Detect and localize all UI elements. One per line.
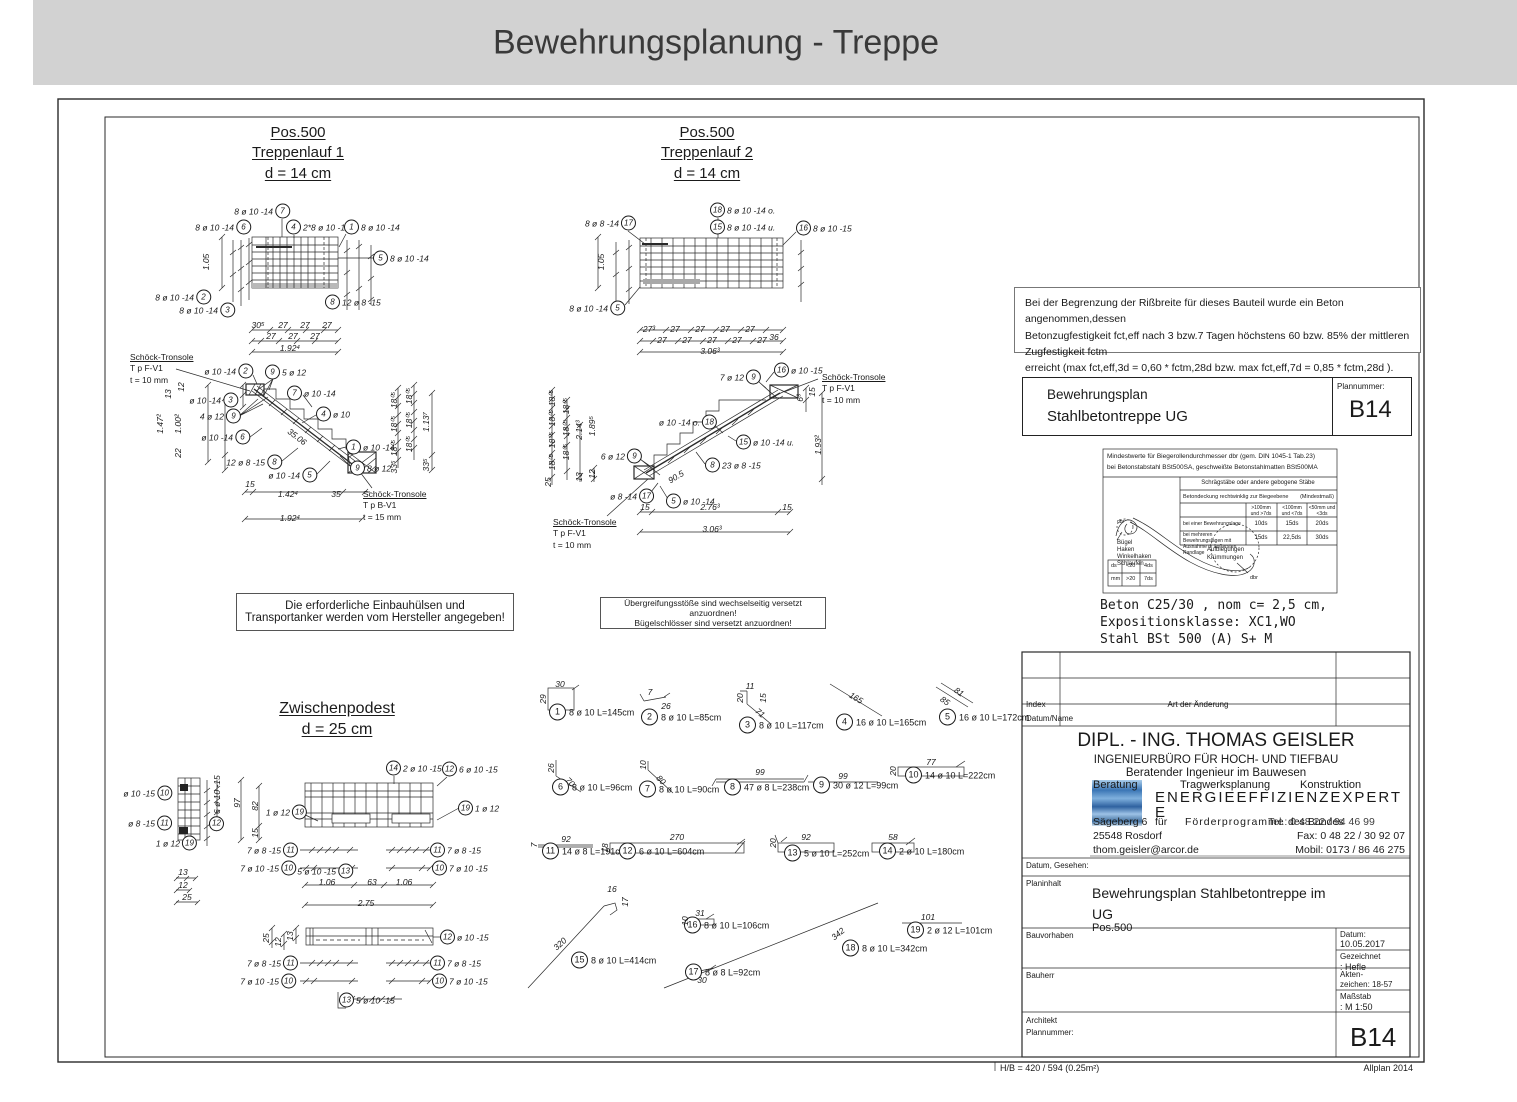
rissbreite-line: Bei der Begrenzung der Rißbreite für die… (1025, 295, 1410, 328)
schedule-item: 416 ø 10 L=165cm (836, 714, 926, 731)
callout: 135 ø 10 -15 (339, 993, 395, 1008)
dim-label: 2.75 (358, 899, 375, 908)
position-number: 8 (325, 295, 340, 310)
dim-label: 18⁰⁵ (562, 398, 571, 414)
dim-label: 27 (288, 332, 297, 341)
position-number: 9 (746, 370, 761, 385)
position-number: 4 (836, 714, 853, 731)
note-line: Transportanker werden vom Hersteller ang… (237, 612, 513, 624)
callout: ø 10 -143 (189, 393, 238, 408)
dim-label: 18⁰⁵ (390, 440, 399, 456)
callout: 58 ø 10 -14 (373, 251, 429, 266)
position-number: 18 (842, 940, 859, 957)
callout: 8 ø 8 -1417 (585, 216, 636, 231)
schoeck-title: Schöck-Tronsole (822, 372, 885, 383)
note-line: Die erforderliche Einbauhülsen und (237, 600, 513, 612)
rebar-label: 8 ø 10 -15 (813, 223, 852, 233)
dim-label: 99 (838, 772, 847, 781)
dim-label: 77 (926, 758, 935, 767)
dim-label: 33⁵ (422, 458, 431, 471)
dim-label: 1.00² (174, 414, 183, 433)
lauf2-name-title: Treppenlauf 2 (661, 144, 753, 161)
schoeck-note-1: Schöck-Tronsole T p F-V1 t = 10 mm (130, 352, 193, 386)
plannummer-label: Plannummer: (1337, 382, 1385, 391)
schedule-item: 192 ø 12 L=101cm (907, 922, 992, 939)
callout: 191 ø 12 (458, 801, 499, 816)
rissbreite-line: Betonzugfestigkeit fct,eff nach 3 bzw.7 … (1025, 328, 1410, 361)
dim-label: 29 (539, 694, 548, 703)
rebar-label: 7 ø 12 (720, 372, 744, 382)
bend-mini-7ds: 7ds (1144, 576, 1153, 582)
callout: ø 8 -1511 (128, 816, 172, 831)
callout: 15ø 10 -14 u. (736, 435, 794, 450)
rebar-label: 8 ø 8 -14 (585, 218, 619, 228)
rebar-label: 7 ø 8 -15 (447, 958, 481, 968)
dim-label: 27 (657, 336, 666, 345)
podest-thickness: d = 25 cm (302, 721, 373, 739)
callout: 8 ø 10 -143 (179, 303, 235, 318)
lauf1-pos-title: Pos.500 (270, 124, 325, 141)
bar-length-label: 47 ø 8 L=238cm (744, 782, 809, 792)
expositionsklasse: Expositionsklasse: XC1,WO (1100, 615, 1296, 630)
schedule-item: 38 ø 10 L=117cm (739, 717, 824, 734)
rebar-label: 7 ø 8 -15 (247, 845, 281, 855)
callout: ø 10 -145 (268, 468, 317, 483)
screenshot-root: Bewehrungsplanung - Treppe (0, 0, 1517, 1102)
bend-row1-label: bei einer Bewehrungslage (1183, 521, 1243, 527)
dim-label: 3.06³ (702, 525, 721, 534)
rebar-label: 7 ø 10 -15 (240, 976, 279, 986)
bar-length-label: 30 ø 12 L=99cm (833, 780, 898, 790)
callout: 117 ø 8 -15 (430, 843, 481, 858)
position-number: 11 (542, 843, 559, 860)
art-der-aenderung-label: Art der Änderung (1168, 700, 1229, 709)
dim-label: 92 (801, 833, 810, 842)
position-number: 13 (784, 845, 801, 862)
dim-label: 1.93² (814, 435, 823, 454)
dim-label: 30 (555, 680, 564, 689)
planinhalt-label: Planinhalt (1026, 879, 1061, 888)
bend-kruemmungen: Krümmungen (1207, 555, 1243, 561)
dim-label: 27 (707, 336, 716, 345)
rebar-label: 12 ø 8 -15 (226, 457, 265, 467)
position-number: 7 (639, 781, 656, 798)
position-number: 9 (813, 777, 830, 794)
bend-dbr-loop: dbr (1117, 519, 1124, 525)
schedule-item: 1014 ø 10 L=222cm (905, 767, 995, 784)
bar-length-label: 14 ø 8 L=191cm (562, 846, 627, 856)
position-number: 19 (907, 922, 924, 939)
position-number: 1 (549, 704, 566, 721)
bar-length-label: 2 ø 12 L=101cm (927, 925, 992, 935)
dim-label: 18⁰⁵ (562, 444, 571, 460)
datum-gesehen-label: Datum, Gesehen: (1026, 861, 1089, 870)
rebar-label: 7 ø 10 -15 (240, 863, 279, 873)
position-number: 16 (774, 363, 789, 378)
callout: 142 ø 10 -15 (386, 761, 442, 776)
rebar-label: 1 ø 12 (156, 838, 180, 848)
rebar-label: 6 ø 10 -15 (212, 775, 222, 814)
bend-aufbiegungen: Aufbiegungen (1207, 547, 1244, 553)
dim-label: 27 (266, 332, 275, 341)
rebar-label: ø 10 -14 (268, 470, 300, 480)
bend-subheader-1: Schrägstäbe oder andere gebogene Stäbe (1201, 480, 1314, 486)
dim-label: 15 (782, 503, 791, 512)
schoeck-type: T p F-V1 (130, 363, 193, 374)
lauf1-name-title: Treppenlauf 1 (252, 144, 344, 161)
bend-row2-v1: 15ds (1254, 535, 1267, 541)
position-number: 10 (905, 767, 922, 784)
bar-length-label: 8 ø 10 L=414cm (591, 955, 656, 965)
callout: 12ø 10 -15 (440, 930, 489, 945)
dim-label: 1.13⁷ (422, 412, 431, 432)
rebar-label: ø 10 -14 u. (753, 437, 794, 447)
dim-label: 18⁰⁵ (405, 412, 414, 428)
firm-city: 25548 Rosdorf (1093, 830, 1162, 842)
dim-label: 18⁰⁵ (405, 388, 414, 404)
position-number: 10 (432, 861, 447, 876)
bar-length-label: 8 ø 10 L=145cm (569, 707, 634, 717)
rebar-label: 8 ø 10 -14 u. (727, 222, 775, 232)
rebar-label: 4 ø 12 (200, 411, 224, 421)
rebar-label: 23 ø 8 -15 (722, 460, 761, 470)
gezeichnet-label: Gezeichnet (1340, 952, 1380, 961)
schoeck-type: T p F-V1 (822, 383, 885, 394)
callout: 8 ø 10 -146 (195, 220, 251, 235)
rebar-label: 5 ø 10 -15 (356, 995, 395, 1005)
rebar-label: 8 ø 10 -14 (390, 253, 429, 263)
dim-label: 13 (575, 472, 584, 481)
firm-role: Beratender Ingenieur im Bauwesen (1126, 767, 1306, 779)
position-number: 14 (386, 761, 401, 776)
schoeck-title: Schöck-Tronsole (553, 517, 616, 528)
bend-buegel: Bügel (1117, 540, 1132, 546)
rebar-label: 8 ø 10 -14 (569, 303, 608, 313)
dim-label: 11 (746, 682, 755, 691)
position-number: 9 (350, 461, 365, 476)
dim-label: 17 (621, 897, 630, 906)
dim-label: 12 (274, 937, 283, 946)
callout: 823 ø 8 -15 (705, 458, 761, 473)
callout: 16ø 10 -15 (774, 363, 823, 378)
lauf2-thickness: d = 14 cm (674, 165, 740, 182)
callout: ø 10 -1510 (123, 786, 172, 801)
rebar-label: ø 10 -14 (204, 366, 236, 376)
position-number: 3 (220, 303, 235, 318)
rebar-label: 7 ø 8 -15 (447, 845, 481, 855)
dim-label: 1.05 (597, 254, 606, 271)
position-number: 8 (724, 779, 741, 796)
schedule-item: 847 ø 8 L=238cm (724, 779, 809, 796)
position-number: 10 (432, 974, 447, 989)
bar-length-label: 8 ø 10 L=342cm (862, 943, 927, 953)
dim-label: 27 (682, 336, 691, 345)
callout: 6 ø 10 -1512 (209, 775, 224, 831)
dim-label: 15 (640, 503, 649, 512)
position-number: 19 (458, 801, 473, 816)
rebar-label: 7 ø 10 -15 (449, 863, 488, 873)
rebar-label: 6 ø 10 -15 (459, 764, 498, 774)
position-number: 11 (157, 816, 172, 831)
dim-label: 26 (547, 763, 556, 772)
dim-label: 27 (720, 325, 729, 334)
schedule-item: 158 ø 10 L=414cm (571, 952, 656, 969)
firm-subtitle: INGENIEURBÜRO FÜR HOCH- UND TIEFBAU (1094, 754, 1339, 766)
position-number: 3 (223, 393, 238, 408)
rebar-label: 8 ø 10 -14 (361, 222, 400, 232)
callout: ø 10 -142 (204, 364, 253, 379)
dim-label: 27³ (643, 325, 655, 334)
bend-col-2: <100mm und <7ds (1278, 505, 1306, 517)
dim-label: 15 (251, 828, 260, 837)
rebar-label: ø 10 -15 (791, 365, 823, 375)
position-number: 17 (621, 216, 636, 231)
callout: 1ø 10 -14 (346, 440, 395, 455)
dim-label: 31 (695, 909, 704, 918)
aktenzeichen-label: Akten- (1340, 970, 1363, 979)
dim-label: 92 (561, 835, 570, 844)
schedule-item: 516 ø 10 L=172cm (939, 709, 1029, 726)
callout: 4ø 10 (316, 407, 350, 422)
dim-label: 27 (278, 321, 287, 330)
position-number: 5 (666, 494, 681, 509)
callout: ø 10 -14 o.18 (659, 415, 717, 430)
position-number: 16 (796, 221, 811, 236)
callout: 98 ø 12 (350, 461, 391, 476)
dim-label: 30⁵ (251, 321, 264, 330)
position-number: 11 (430, 843, 445, 858)
bar-length-label: 2 ø 10 L=180cm (899, 846, 964, 856)
rebar-label: ø 10 -14 (304, 388, 336, 398)
datum-name-label: Datum/Name (1026, 714, 1073, 723)
dim-label: 18 (601, 843, 610, 852)
dim-label: 13 (286, 931, 295, 940)
position-number: 7 (275, 204, 290, 219)
bend-mini-ds: ds (1111, 563, 1117, 569)
position-number: 10 (157, 786, 172, 801)
bend-row2-v2: 22,5ds (1283, 535, 1301, 541)
dim-label: 6³ (796, 394, 805, 402)
dim-label: 1.89⁵ (588, 416, 597, 436)
podest-title: Zwischenpodest (279, 700, 395, 718)
rebar-label: ø 10 -14 (201, 432, 233, 442)
position-number: 10 (281, 861, 296, 876)
bar-length-label: 8 ø 10 L=96cm (572, 782, 632, 792)
schedule-item: 135 ø 10 L=252cm (784, 845, 869, 862)
bar-length-label: 14 ø 10 L=222cm (925, 770, 995, 780)
bar-length-label: 8 ø 10 L=85cm (661, 712, 721, 722)
position-number: 15 (571, 952, 588, 969)
lauf2-pos-title: Pos.500 (679, 124, 734, 141)
drawing-linework (0, 0, 1517, 1102)
plannummer-label-2: Plannummer: (1026, 1028, 1074, 1037)
position-number: 9 (226, 409, 241, 424)
rebar-label: ø 10 -15 (457, 932, 489, 942)
schedule-item: 142 ø 10 L=180cm (879, 843, 964, 860)
bend-mini-mm: mm (1111, 576, 1120, 582)
bend-header-2: bei Betonstabstahl BSt500SA, geschweißte… (1107, 464, 1318, 471)
dim-label: 101 (921, 913, 935, 922)
bend-subheader-2: Betondeckung rechtwinklig zur Biegeebene (1183, 494, 1289, 500)
schedule-item: 126 ø 10 L=604cm (619, 843, 704, 860)
position-number: 18 (702, 415, 717, 430)
dim-label: 27 (695, 325, 704, 334)
aktenzeichen-value: zeichen: 18-57 (1340, 980, 1392, 989)
bend-mini-4ds: 4ds (1144, 563, 1153, 569)
bend-row1-v2: 15ds (1285, 521, 1298, 527)
bauvorhaben-label: Bauvorhaben (1026, 931, 1074, 940)
planinhalt-line2: UG (1092, 906, 1113, 922)
rebar-label: ø 10 (333, 409, 350, 419)
bar-length-label: 16 ø 10 L=165cm (856, 717, 926, 727)
callout: 42*8 ø 10 -14 (286, 220, 350, 235)
callout: 168 ø 10 -15 (796, 221, 852, 236)
bar-length-label: 6 ø 10 L=604cm (639, 846, 704, 856)
position-number: 19 (292, 805, 307, 820)
dim-label: 27 (732, 336, 741, 345)
rebar-label: ø 8 -14 (610, 491, 637, 501)
stahl-spec: Stahl BSt 500 (A) S+ M (1100, 632, 1272, 647)
datum-value: 10.05.2017 (1340, 939, 1385, 949)
bend-mini-gt20: >20 (1126, 576, 1135, 582)
position-number: 12 (619, 843, 636, 860)
dim-label: 27 (745, 325, 754, 334)
dim-label: 10 (639, 760, 648, 769)
firm-name: DIPL. - ING. THOMAS GEISLER (1077, 730, 1354, 752)
bend-col-1: >100mm und >7ds (1247, 505, 1275, 517)
rebar-label: 6 ø 12 (601, 451, 625, 461)
dim-label: 1.06 (319, 878, 336, 887)
callout: ø 10 -146 (201, 430, 250, 445)
dim-label: 25 (544, 477, 553, 486)
dim-label: 33⁵ (390, 460, 399, 473)
dim-label: 27 (300, 321, 309, 330)
note-uebergreifung: Übergreifungsstöße sind wechselseitig ve… (600, 597, 826, 629)
firm-beratung: Beratung (1093, 779, 1138, 791)
dim-label: 2.14³ (575, 420, 584, 439)
position-number: 5 (373, 251, 388, 266)
planinhalt-pos: Pos.500 (1092, 922, 1132, 934)
dim-label: 25 (262, 933, 271, 942)
planinhalt-line1: Bewehrungsplan Stahlbetontreppe im (1092, 885, 1326, 901)
schedule-item: 28 ø 10 L=85cm (641, 709, 721, 726)
callout: 158 ø 10 -14 u. (710, 220, 775, 235)
schoeck-type: T p F-V1 (553, 528, 616, 539)
position-number: 8 (705, 458, 720, 473)
callout: 7 ø 8 -1511 (247, 956, 298, 971)
position-number: 11 (430, 956, 445, 971)
position-number: 9 (265, 365, 280, 380)
architekt-label: Architekt (1026, 1016, 1057, 1025)
plannummer-value: B14 (1349, 396, 1392, 424)
bar-length-label: 8 ø 8 L=92cm (705, 967, 760, 977)
schoeck-thickness: t = 10 mm (553, 540, 616, 551)
schedule-item: 188 ø 10 L=342cm (842, 940, 927, 957)
dim-label: 99 (755, 768, 764, 777)
position-number: 4 (286, 220, 301, 235)
firm-street: Sägeberg 6 (1093, 816, 1147, 828)
dim-label: 15 (808, 387, 817, 396)
position-number: 12 (209, 816, 224, 831)
rebar-label: 8 ø 10 -14 (195, 222, 234, 232)
bauherr-label: Bauherr (1026, 971, 1054, 980)
dim-label: 20 (889, 766, 898, 775)
dim-label: 27 (670, 325, 679, 334)
position-number: 12 (442, 762, 457, 777)
rebar-label: ø 10 -14 (189, 395, 221, 405)
dim-label: 18⁰⁵ (390, 392, 399, 408)
position-number: 18 (710, 203, 725, 218)
callout: 7 ø 10 -1510 (240, 861, 296, 876)
bend-row1-v1: 10ds (1254, 521, 1267, 527)
position-number: 11 (283, 956, 298, 971)
dim-label: 1.92⁴ (280, 514, 300, 523)
callout: 188 ø 10 -14 o. (710, 203, 775, 218)
position-number: 7 (287, 386, 302, 401)
lauf1-thickness: d = 14 cm (265, 165, 331, 182)
position-number: 6 (236, 220, 251, 235)
callout: 1 ø 1219 (266, 805, 307, 820)
firm-fuer: für (1155, 816, 1167, 828)
dim-label: 15 (759, 693, 768, 702)
callout: 8 ø 10 -147 (234, 204, 290, 219)
firm-fax: Fax: 0 48 22 / 30 92 07 (1297, 830, 1405, 842)
bend-row2-v3: 30ds (1315, 535, 1328, 541)
rebar-label: 8 ø 10 -14 (179, 305, 218, 315)
dim-label: 26 (661, 702, 670, 711)
beton-spec: Beton C25/30 , nom c= 2,5 cm, (1100, 598, 1327, 613)
callout: 7 ø 129 (720, 370, 761, 385)
dim-label: 18⁰⁵ (390, 416, 399, 432)
dim-label: 270 (670, 833, 684, 842)
schoeck-note-4: Schöck-Tronsole T p F-V1 t = 10 mm (553, 517, 616, 551)
bend-col-3: <50mm und <3ds (1308, 505, 1336, 517)
rebar-label: ø 10 -14 o. (659, 417, 700, 427)
schoeck-type: T p B-V1 (363, 500, 426, 511)
rebar-label: 5 ø 10 -15 (297, 866, 336, 876)
dim-label: 18⁰⁵ (548, 390, 557, 406)
dim-label: 20 (736, 693, 745, 702)
rebar-label: 2*8 ø 10 -14 (303, 222, 350, 232)
dim-label: 1.05 (202, 254, 211, 271)
schedule-item: 930 ø 12 L=99cm (813, 777, 898, 794)
dim-label: 1.06 (396, 878, 413, 887)
rebar-label: 7 ø 10 -15 (449, 976, 488, 986)
dim-label: 13 (178, 868, 187, 877)
rissbreite-note: Bei der Begrenzung der Rißbreite für die… (1014, 287, 1421, 353)
rebar-label: 7 ø 8 -15 (247, 958, 281, 968)
cad-app-version: Allplan 2014 (1363, 1063, 1413, 1073)
dim-label: 12 (178, 881, 187, 890)
dim-label: 18⁰⁵ (548, 410, 557, 426)
note-line: Übergreifungsstöße sind wechselseitig ve… (601, 598, 825, 618)
dim-label: 16 (607, 885, 616, 894)
callout: 6 ø 129 (601, 449, 642, 464)
dim-label: 7 (530, 843, 539, 848)
rebar-label: 1 ø 12 (266, 807, 290, 817)
dim-label: 18⁰⁵ (405, 436, 414, 452)
plan-name-box: Bewehrungsplan Stahlbetontreppe UG Plann… (1022, 377, 1412, 436)
position-number: 13 (339, 993, 354, 1008)
bend-mini-lt20: <20 (1126, 563, 1135, 569)
position-number: 5 (939, 709, 956, 726)
position-number: 9 (627, 449, 642, 464)
dim-label: 27 (310, 332, 319, 341)
position-number: 12 (440, 930, 455, 945)
dim-label: 25 (182, 893, 191, 902)
schedule-item: 18 ø 10 L=145cm (549, 704, 634, 721)
bar-length-label: 8 ø 10 L=90cm (659, 784, 719, 794)
